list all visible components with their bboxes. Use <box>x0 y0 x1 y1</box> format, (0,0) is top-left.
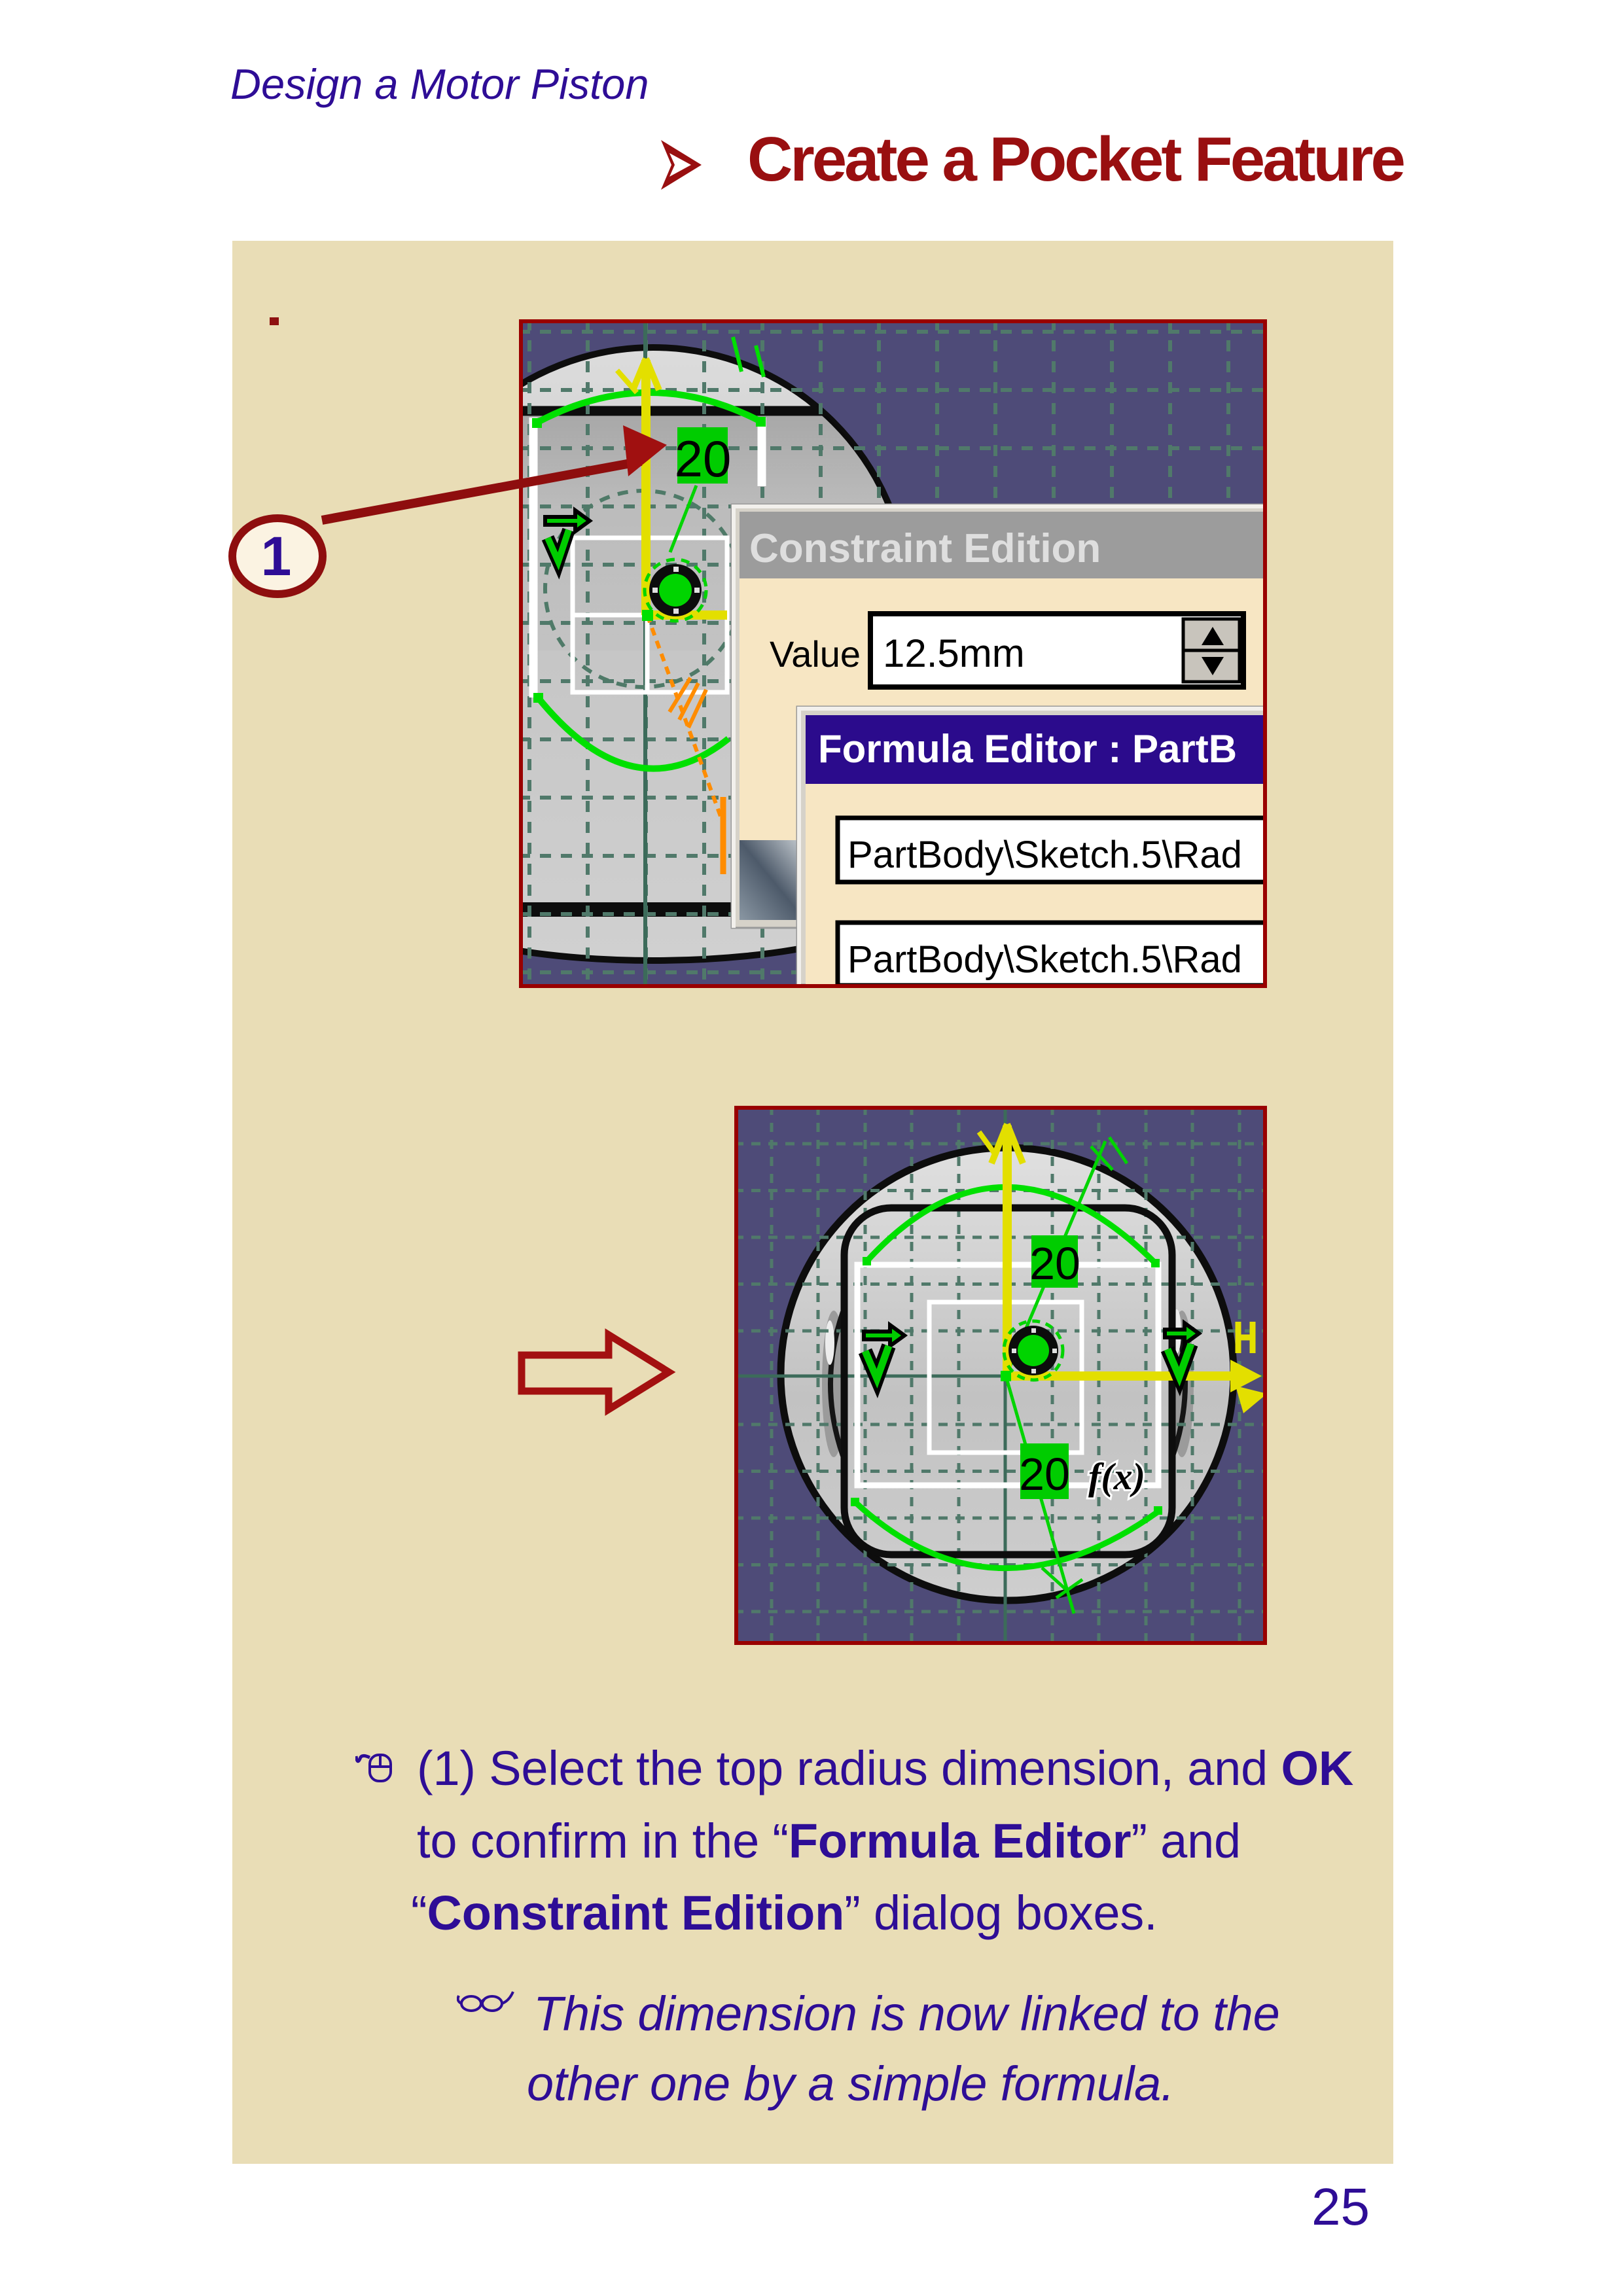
svg-text:Value: Value <box>770 633 861 675</box>
svg-text:Constraint Edition: Constraint Edition <box>749 526 1101 571</box>
svg-text:PartBody\Sketch.5\Rad: PartBody\Sketch.5\Rad <box>847 834 1242 876</box>
svg-text:20: 20 <box>1019 1449 1070 1500</box>
svg-text:12.5mm: 12.5mm <box>883 631 1025 675</box>
svg-text:Formula Editor : PartB: Formula Editor : PartB <box>818 727 1237 771</box>
svg-text:1: 1 <box>261 525 292 587</box>
svg-text:20: 20 <box>1029 1238 1080 1289</box>
svg-text:PartBody\Sketch.5\Rad: PartBody\Sketch.5\Rad <box>847 938 1242 981</box>
svg-text:f(x): f(x) <box>1088 1455 1145 1498</box>
